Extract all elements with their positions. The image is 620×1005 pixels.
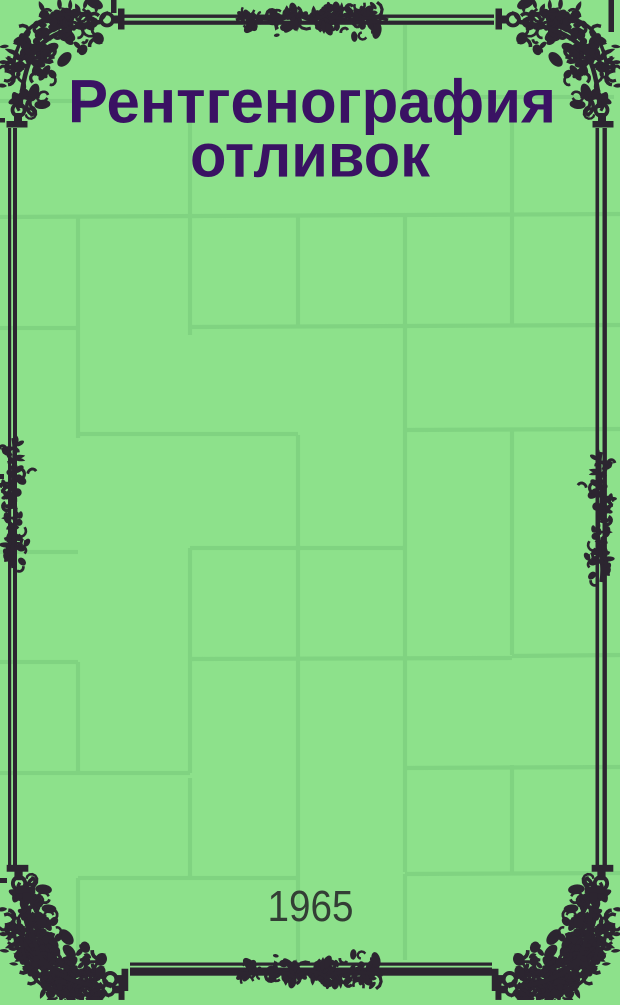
svg-text:1965: 1965 xyxy=(268,882,354,931)
svg-text:отливок: отливок xyxy=(190,121,430,189)
